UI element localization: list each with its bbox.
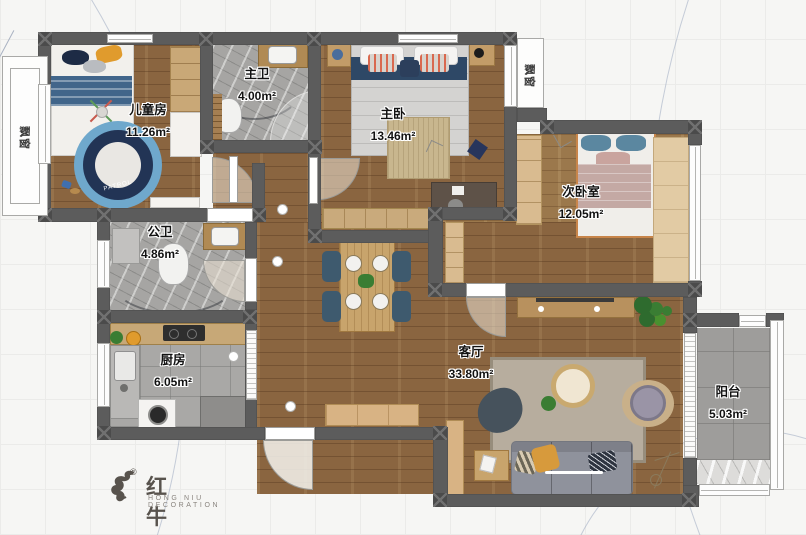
master-bath-sink xyxy=(268,46,297,64)
room-area: 13.46m² xyxy=(371,130,416,142)
master-desk-paper xyxy=(452,186,464,195)
plate xyxy=(372,293,389,310)
public-bath-window xyxy=(97,240,110,288)
wall-post xyxy=(540,120,554,134)
balcony-right-window xyxy=(770,320,784,490)
wall-post xyxy=(688,120,702,134)
wall-kids-right xyxy=(200,45,213,153)
pinwheel-hub xyxy=(96,106,108,118)
room-name: 阳台 xyxy=(715,385,740,399)
kids-door-leaf xyxy=(207,208,253,222)
room-area: 6.05m² xyxy=(154,376,192,388)
ceiling-lamp-icon xyxy=(272,256,283,267)
master-pillow-stripe xyxy=(420,54,449,72)
wall-post xyxy=(97,208,111,222)
wall-master-south xyxy=(308,230,433,243)
monstera-plant xyxy=(634,296,652,314)
entry-door-leaf xyxy=(265,427,315,440)
public-bath-sink xyxy=(211,227,239,246)
tv-screen xyxy=(536,298,614,302)
master-top-window xyxy=(398,34,458,43)
wall-post xyxy=(38,32,52,46)
wall-post xyxy=(200,140,214,154)
dining-chair xyxy=(322,251,341,282)
master-window xyxy=(504,45,517,107)
wall-post xyxy=(428,207,442,221)
ceiling-lamp-icon xyxy=(228,351,239,362)
armchair xyxy=(630,385,666,421)
nightstand-lamp-icon xyxy=(474,48,484,58)
wall-post xyxy=(97,310,111,324)
wall-post xyxy=(688,283,702,297)
kids-toy xyxy=(70,188,80,194)
kids-bench xyxy=(150,197,200,208)
room-label-balcony: 阳台 5.03m² xyxy=(709,386,747,420)
wall-post xyxy=(503,207,517,221)
room-name: 客厅 xyxy=(458,345,483,359)
wall-post xyxy=(252,208,266,222)
cooktop xyxy=(163,325,205,341)
master-dresser xyxy=(322,208,429,229)
wall-post xyxy=(199,32,213,46)
master-desk xyxy=(431,182,497,208)
room-name: 主卧 xyxy=(380,107,405,121)
room-name: 公卫 xyxy=(147,225,172,239)
wall-entry-right xyxy=(315,427,448,440)
master-pillow-navy xyxy=(400,60,419,77)
public-bath-door-leaf xyxy=(245,258,257,302)
burner xyxy=(169,329,179,339)
room-name: 厨房 xyxy=(160,353,185,367)
room-area: 11.26m² xyxy=(126,126,170,138)
balcony-slider-door xyxy=(684,333,696,458)
room-label-kitchen: 厨房 6.05m² xyxy=(154,354,192,388)
dining-chair xyxy=(392,251,411,282)
tv-knob xyxy=(594,306,600,312)
wall-post xyxy=(682,493,696,507)
kids-desk xyxy=(170,112,202,157)
wall-mbath-bottom xyxy=(200,140,321,153)
room-area: 12.05m² xyxy=(559,208,604,220)
second-wardrobe xyxy=(516,135,542,225)
second-pillow-blue xyxy=(581,135,611,151)
kitchen-pot xyxy=(126,331,141,346)
plate xyxy=(345,255,362,272)
master-bed-door-leaf xyxy=(309,157,318,204)
room-label-master-bath: 主卫 4.00m² xyxy=(238,68,276,102)
second-bed-window xyxy=(689,145,701,281)
wall-post xyxy=(97,426,111,440)
wall-living-bottom xyxy=(433,494,695,507)
wall-post xyxy=(308,140,322,154)
coffee-table xyxy=(551,364,595,408)
washing-machine-door-icon xyxy=(148,405,168,425)
room-label-living: 客厅 33.80m² xyxy=(449,346,494,380)
room-name: 次卧室 xyxy=(562,185,600,199)
balcony-top-window xyxy=(739,315,766,327)
kitchen-faucet-icon xyxy=(120,384,128,392)
ceiling-lamp-icon xyxy=(277,204,288,215)
room-area: 4.86m² xyxy=(141,248,179,260)
tv-knob xyxy=(538,306,544,312)
kitchen-sink xyxy=(114,351,136,381)
room-label-master-bed: 主卧 13.46m² xyxy=(371,108,416,142)
room-area: 33.80m² xyxy=(449,368,494,380)
registered-mark: ® xyxy=(130,467,137,477)
wall-post xyxy=(307,32,321,46)
master-bath-door-leaf xyxy=(229,156,238,203)
plate xyxy=(372,255,389,272)
kitchen-sliding-door xyxy=(246,330,257,400)
room-area: 5.03m² xyxy=(709,408,747,420)
kids-window xyxy=(38,84,51,164)
wall-post xyxy=(308,229,322,243)
room-label-public-bath: 公卫 4.86m² xyxy=(141,226,179,260)
nook-wardrobe xyxy=(445,222,464,284)
public-bath-cabinet xyxy=(112,228,140,264)
wall-post xyxy=(243,310,257,324)
wall-post xyxy=(503,32,517,46)
fridge xyxy=(200,396,246,428)
bay-window-label: 飘窗 xyxy=(522,64,538,88)
window-desk xyxy=(653,137,689,283)
dining-chair xyxy=(322,291,341,322)
kitchen-plant xyxy=(110,331,123,344)
table-centerpiece-plant xyxy=(358,274,374,288)
dining-chair xyxy=(392,291,411,322)
burner xyxy=(187,329,197,339)
wall-kitchen-bottom xyxy=(97,427,265,440)
nightstand-plant-icon xyxy=(332,49,343,60)
balcony-bottom-window xyxy=(699,484,770,496)
wall-pbath-kitchen xyxy=(97,310,257,323)
ceiling-lamp-icon xyxy=(285,401,296,412)
lamp-head xyxy=(650,474,662,486)
master-pillow-stripe xyxy=(368,54,397,72)
balcony-sill xyxy=(697,460,770,484)
wall-bed2-top xyxy=(540,120,702,134)
floor-lamp-sketch xyxy=(646,448,682,492)
wall-post xyxy=(683,313,697,327)
wall-post xyxy=(433,426,447,440)
kids-top-window xyxy=(107,34,153,43)
room-label-kids: 儿童房 11.26m² xyxy=(126,104,170,138)
kids-wardrobe xyxy=(170,46,202,113)
shoe-cabinet xyxy=(325,404,419,426)
brand-subtitle: HONG NIU DECORATION xyxy=(148,495,220,509)
kids-pillow-gray xyxy=(83,60,106,73)
second-bed-door-leaf xyxy=(466,283,506,297)
kitchen-window xyxy=(97,343,110,407)
wall-post xyxy=(428,283,442,297)
bay-window-label: 飘窗 xyxy=(17,126,33,150)
sofa-throw-line xyxy=(545,471,603,474)
wall-post xyxy=(433,493,447,507)
room-name: 儿童房 xyxy=(129,103,167,117)
plate xyxy=(345,293,362,310)
room-name: 主卫 xyxy=(244,67,269,81)
room-label-second-bed: 次卧室 12.05m² xyxy=(559,186,604,220)
floorplan-canvas: PATROL xyxy=(0,0,806,535)
second-pillow-blue xyxy=(616,135,646,151)
master-bath-shelf xyxy=(213,94,222,140)
rug-plant xyxy=(541,396,556,411)
room-area: 4.00m² xyxy=(238,90,276,102)
entry-cabinet xyxy=(446,420,464,496)
